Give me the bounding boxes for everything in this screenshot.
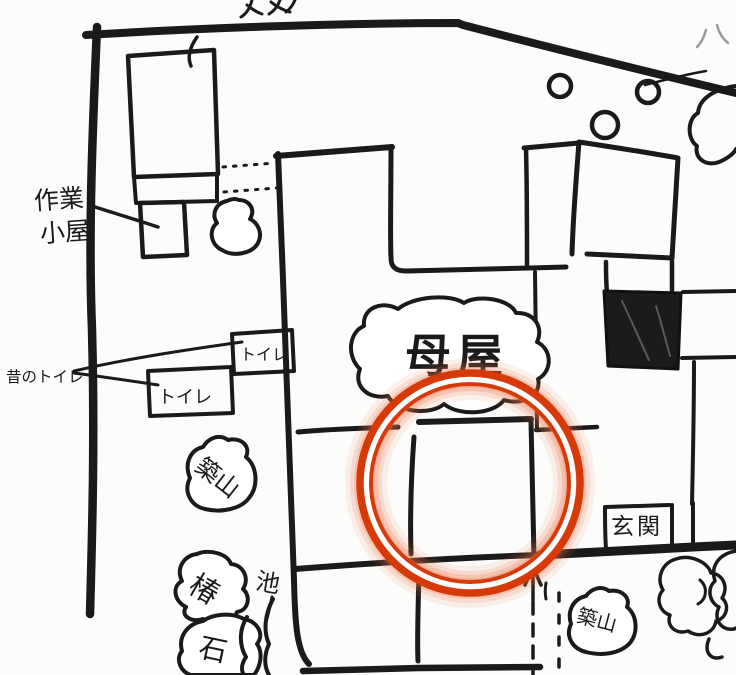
courtyard-notch-wall xyxy=(391,147,566,271)
right-wing-outline xyxy=(572,142,678,258)
right-edge-wall-upper xyxy=(682,291,736,358)
house-top-edge-mid xyxy=(524,143,579,148)
courtyard-notch-right-wall xyxy=(526,148,527,267)
right-outer-wall xyxy=(692,362,694,504)
property-map-canvas: 作業 小屋 昔のトイレ トイレ トイレ 母屋 玄関 築山 椿 池 石 築山 xyxy=(0,0,736,675)
label-pond: 池 xyxy=(254,567,282,599)
label-toilet-lower: トイレ xyxy=(158,387,212,408)
rock-blob-2 xyxy=(707,551,736,658)
fence-top-line xyxy=(86,23,736,93)
house-left-wall xyxy=(278,154,309,664)
stone-circle-3 xyxy=(592,112,618,138)
circled-room-left-wall xyxy=(411,437,414,554)
fence-left-line xyxy=(90,27,97,614)
leader-line-work-shed xyxy=(95,207,158,227)
house-top-wall xyxy=(276,147,392,156)
stone-circle-1 xyxy=(549,75,571,97)
dotted-connector-1 xyxy=(223,163,275,167)
right-wing-inner-walls xyxy=(606,261,672,292)
dotted-connector-2 xyxy=(224,188,277,192)
label-work-shed-line1: 作業 xyxy=(33,183,85,215)
partial-top-strokes xyxy=(241,0,295,17)
rock-blob-1 xyxy=(659,557,726,634)
dashed-boundary-tick xyxy=(545,583,546,599)
tree-blob xyxy=(212,199,260,254)
circled-room-top-wall xyxy=(419,419,531,422)
hand-drawn-map: 作業 小屋 昔のトイレ トイレ トイレ 母屋 玄関 築山 椿 池 石 築山 xyxy=(0,0,736,675)
label-toilet-upper: トイレ xyxy=(240,345,288,364)
label-entrance: 玄関 xyxy=(611,514,663,540)
partial-corner-strokes xyxy=(697,25,728,47)
top-right-blob xyxy=(690,86,736,163)
rock-blob-1-curl xyxy=(698,580,705,604)
hatched-room-fill xyxy=(604,291,681,369)
label-work-shed-line2: 小屋 xyxy=(39,216,91,248)
shed-outline xyxy=(128,50,218,177)
label-old-toilet: 昔のトイレ xyxy=(6,368,84,386)
lower-room-bottom-wall xyxy=(303,667,540,671)
toilet-leader-lines xyxy=(74,342,242,385)
shed-small-room xyxy=(140,202,187,257)
